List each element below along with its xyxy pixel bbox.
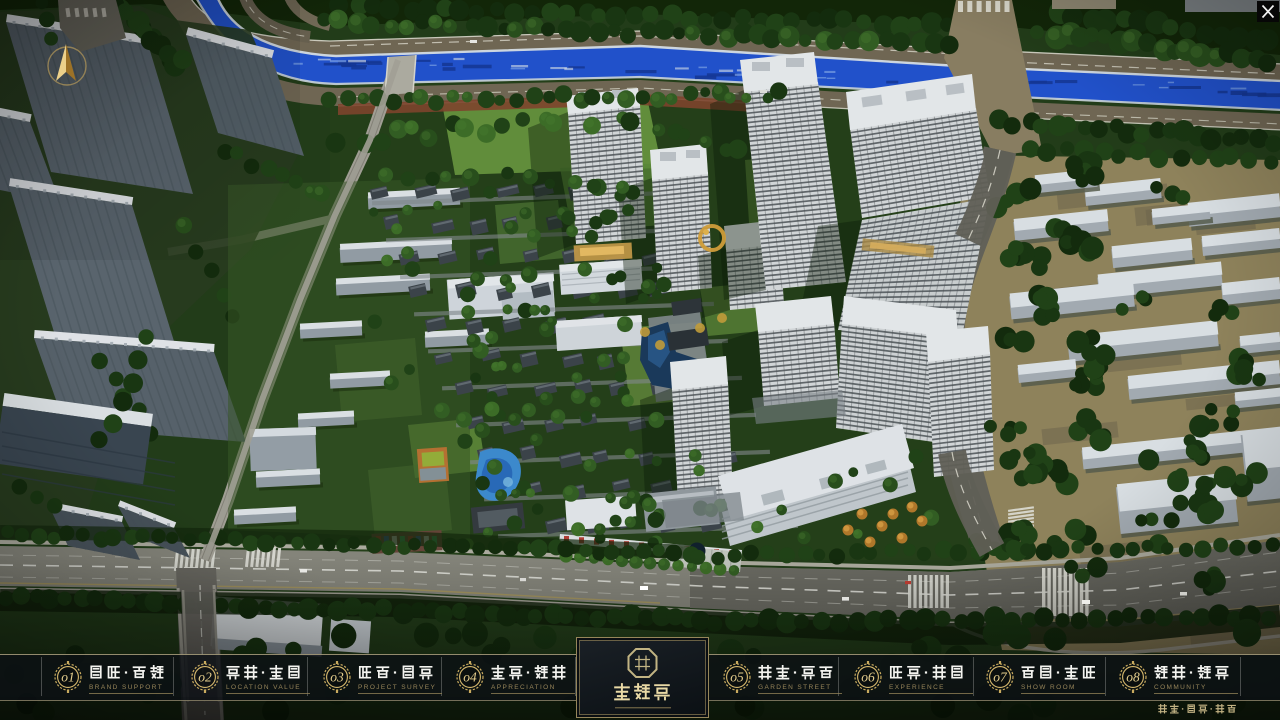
svg-text:o8: o8: [1126, 670, 1140, 685]
svg-text:o3: o3: [330, 670, 344, 685]
svg-text:o5: o5: [730, 670, 744, 685]
svg-text:o2: o2: [198, 670, 212, 685]
svg-text:o4: o4: [463, 670, 477, 685]
svg-text:o1: o1: [61, 670, 75, 685]
svg-text:o7: o7: [993, 670, 1008, 685]
svg-text:o6: o6: [861, 670, 875, 685]
